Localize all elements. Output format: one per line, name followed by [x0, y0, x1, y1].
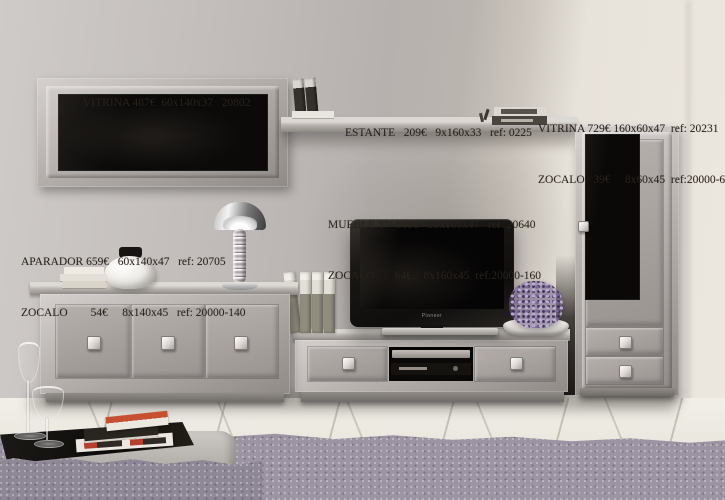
drawer-knob	[510, 357, 523, 370]
label-line: ESTANTE 209€ 9x160x33 ref: 0225	[345, 125, 532, 142]
label-line: APARADOR 659€ 60x140x47 ref: 20705	[21, 254, 246, 271]
glass-bowl	[32, 386, 64, 421]
av-receiver	[392, 350, 470, 358]
zocalo-plinth	[46, 393, 284, 402]
book	[312, 272, 323, 333]
glass-foot	[34, 440, 64, 448]
label-tall-vitrina: VITRINA 729€ 160x60x47 ref: 20231 ZOCALO…	[538, 87, 725, 223]
label-mueble-tv: MUEBLE TV 569€ 35x160x47 ref: 20640 ZOCA…	[328, 183, 541, 319]
label-aparador: APARADOR 659€ 60x140x47 ref: 20705 ZOCAL…	[21, 220, 246, 356]
book-flat	[292, 111, 334, 119]
label-estante: ESTANTE 209€ 9x160x33 ref: 0225	[345, 91, 532, 176]
catalog-photo: Pioneer VITRINA 487€ 60x140x37 20802 EST…	[0, 0, 725, 500]
tv-cabinet	[293, 329, 570, 404]
tv-stand-base	[382, 328, 498, 335]
label-line: VITRINA 729€ 160x60x47 ref: 20231	[538, 121, 725, 138]
glass-stem	[46, 418, 48, 440]
drawer-knob	[619, 336, 632, 349]
dvd-knob	[453, 366, 458, 371]
dvd-player	[391, 363, 471, 375]
wine-glass-short	[28, 386, 68, 448]
label-line: MUEBLE TV 569€ 35x160x47 ref: 20640	[328, 217, 541, 234]
label-line: ZOCALO 54€ 8x140x45 ref: 20000-140	[21, 305, 246, 322]
drawer-knob	[342, 357, 355, 370]
dvd-display	[399, 367, 427, 370]
book	[300, 272, 311, 333]
label-line: ZOCALO 64€ 8x160x45 ref:20000-160	[328, 268, 541, 285]
zocalo-plinth	[301, 392, 564, 402]
label-line: VITRINA 487€ 60x140x37 20802	[83, 95, 250, 112]
drawer-knob	[619, 365, 632, 378]
label-line: ZOCALO 39€ 8x60x45 ref:20000-60	[538, 172, 725, 189]
label-wall-vitrina: VITRINA 487€ 60x140x37 20802	[83, 61, 250, 146]
zocalo-plinth	[580, 388, 674, 396]
